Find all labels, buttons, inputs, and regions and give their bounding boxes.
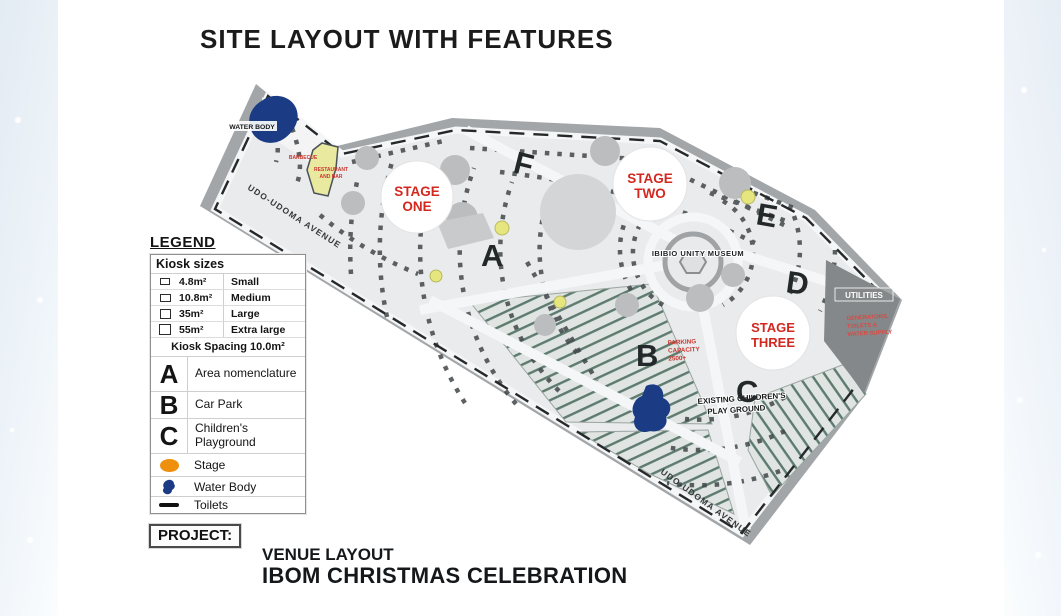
kiosk-small-icon bbox=[160, 278, 170, 285]
legend-letter-c: C bbox=[151, 419, 188, 453]
kiosk-large-icon bbox=[160, 309, 171, 319]
legend-letter-a: A bbox=[151, 357, 188, 391]
svg-text:STAGE: STAGE bbox=[627, 171, 673, 186]
legend-title: LEGEND bbox=[150, 234, 306, 251]
legend-kiosk-row-small: 4.8m² Small bbox=[151, 274, 305, 290]
legend-kiosk-row-large: 35m² Large bbox=[151, 306, 305, 322]
legend-panel: LEGEND Kiosk sizes 4.8m² Small 10.8m² Me… bbox=[150, 234, 306, 514]
svg-text:TWO: TWO bbox=[634, 186, 666, 201]
legend-row-car-park: B Car Park bbox=[151, 392, 305, 419]
project-venue-layout: VENUE LAYOUT bbox=[262, 545, 394, 565]
area-letter-a: A bbox=[481, 238, 503, 273]
stage-icon bbox=[160, 459, 179, 472]
area-letter-b: B bbox=[636, 338, 658, 373]
legend-row-area-nomenclature: A Area nomenclature bbox=[151, 357, 305, 392]
stage-three-marker: STAGE THREE bbox=[736, 296, 810, 370]
project-label-box: PROJECT: bbox=[149, 524, 241, 548]
stage-two-marker: STAGE TWO bbox=[613, 147, 687, 221]
restaurant-label-line2: AND BAR bbox=[319, 174, 342, 180]
svg-text:STAGE: STAGE bbox=[751, 320, 795, 335]
utilities-label: UTILITIES bbox=[845, 291, 883, 300]
legend-kiosk-row-extra-large: 55m² Extra large bbox=[151, 322, 305, 338]
stage-one-marker: STAGE ONE bbox=[381, 161, 453, 233]
kiosk-size-label: Small bbox=[223, 274, 305, 289]
legend-letter-b: B bbox=[151, 392, 188, 418]
legend-label: Car Park bbox=[188, 392, 305, 418]
restaurant-label-line1: RESTAURANT bbox=[314, 167, 348, 173]
svg-text:ONE: ONE bbox=[402, 199, 431, 214]
legend-row-stage: Stage bbox=[151, 454, 305, 477]
water-body-label: WATER BODY bbox=[229, 124, 275, 131]
kiosk-size-label: Large bbox=[223, 306, 305, 321]
parking-note-line3: 2500+ bbox=[668, 355, 686, 363]
legend-row-childrens-playground: C Children's Playground bbox=[151, 419, 305, 454]
toilets-icon bbox=[159, 503, 179, 507]
svg-text:STAGE: STAGE bbox=[394, 184, 440, 199]
legend-label: Area nomenclature bbox=[188, 357, 305, 391]
kiosk-size-label: Medium bbox=[223, 290, 305, 305]
barbecue-label: BARBECUE bbox=[289, 155, 318, 161]
water-body-icon bbox=[161, 479, 177, 495]
legend-kiosk-row-medium: 10.8m² Medium bbox=[151, 290, 305, 306]
legend-box: Kiosk sizes 4.8m² Small 10.8m² Medium 35… bbox=[150, 254, 306, 514]
kiosk-extra-large-icon bbox=[159, 324, 171, 335]
kiosk-size-value: 35m² bbox=[179, 306, 223, 321]
legend-kiosk-spacing: Kiosk Spacing 10.0m² bbox=[151, 338, 305, 357]
project-event-title: IBOM CHRISTMAS CELEBRATION bbox=[262, 563, 628, 589]
screenshot-root: SITE LAYOUT WITH FEATURES bbox=[0, 0, 1061, 616]
kiosk-size-value: 10.8m² bbox=[179, 290, 223, 305]
kiosk-size-value: 4.8m² bbox=[179, 274, 223, 289]
museum-label: IBIBIO UNITY MUSEUM bbox=[652, 249, 744, 258]
area-letter-c: C bbox=[736, 374, 758, 409]
kiosk-size-value: 55m² bbox=[179, 322, 223, 337]
legend-kiosk-sizes-header: Kiosk sizes bbox=[151, 255, 305, 274]
museum-plaza bbox=[665, 234, 721, 290]
legend-label: Water Body bbox=[187, 480, 305, 494]
kiosk-medium-icon bbox=[160, 294, 171, 302]
legend-label: Children's Playground bbox=[188, 419, 305, 453]
legend-row-water-body: Water Body bbox=[151, 477, 305, 497]
kiosk-size-label: Extra large bbox=[223, 322, 305, 337]
legend-label: Toilets bbox=[187, 498, 305, 512]
legend-label: Stage bbox=[187, 458, 305, 472]
legend-row-toilets: Toilets bbox=[151, 497, 305, 513]
svg-text:THREE: THREE bbox=[751, 335, 795, 350]
parking-note-line1: PARKING bbox=[667, 338, 696, 346]
